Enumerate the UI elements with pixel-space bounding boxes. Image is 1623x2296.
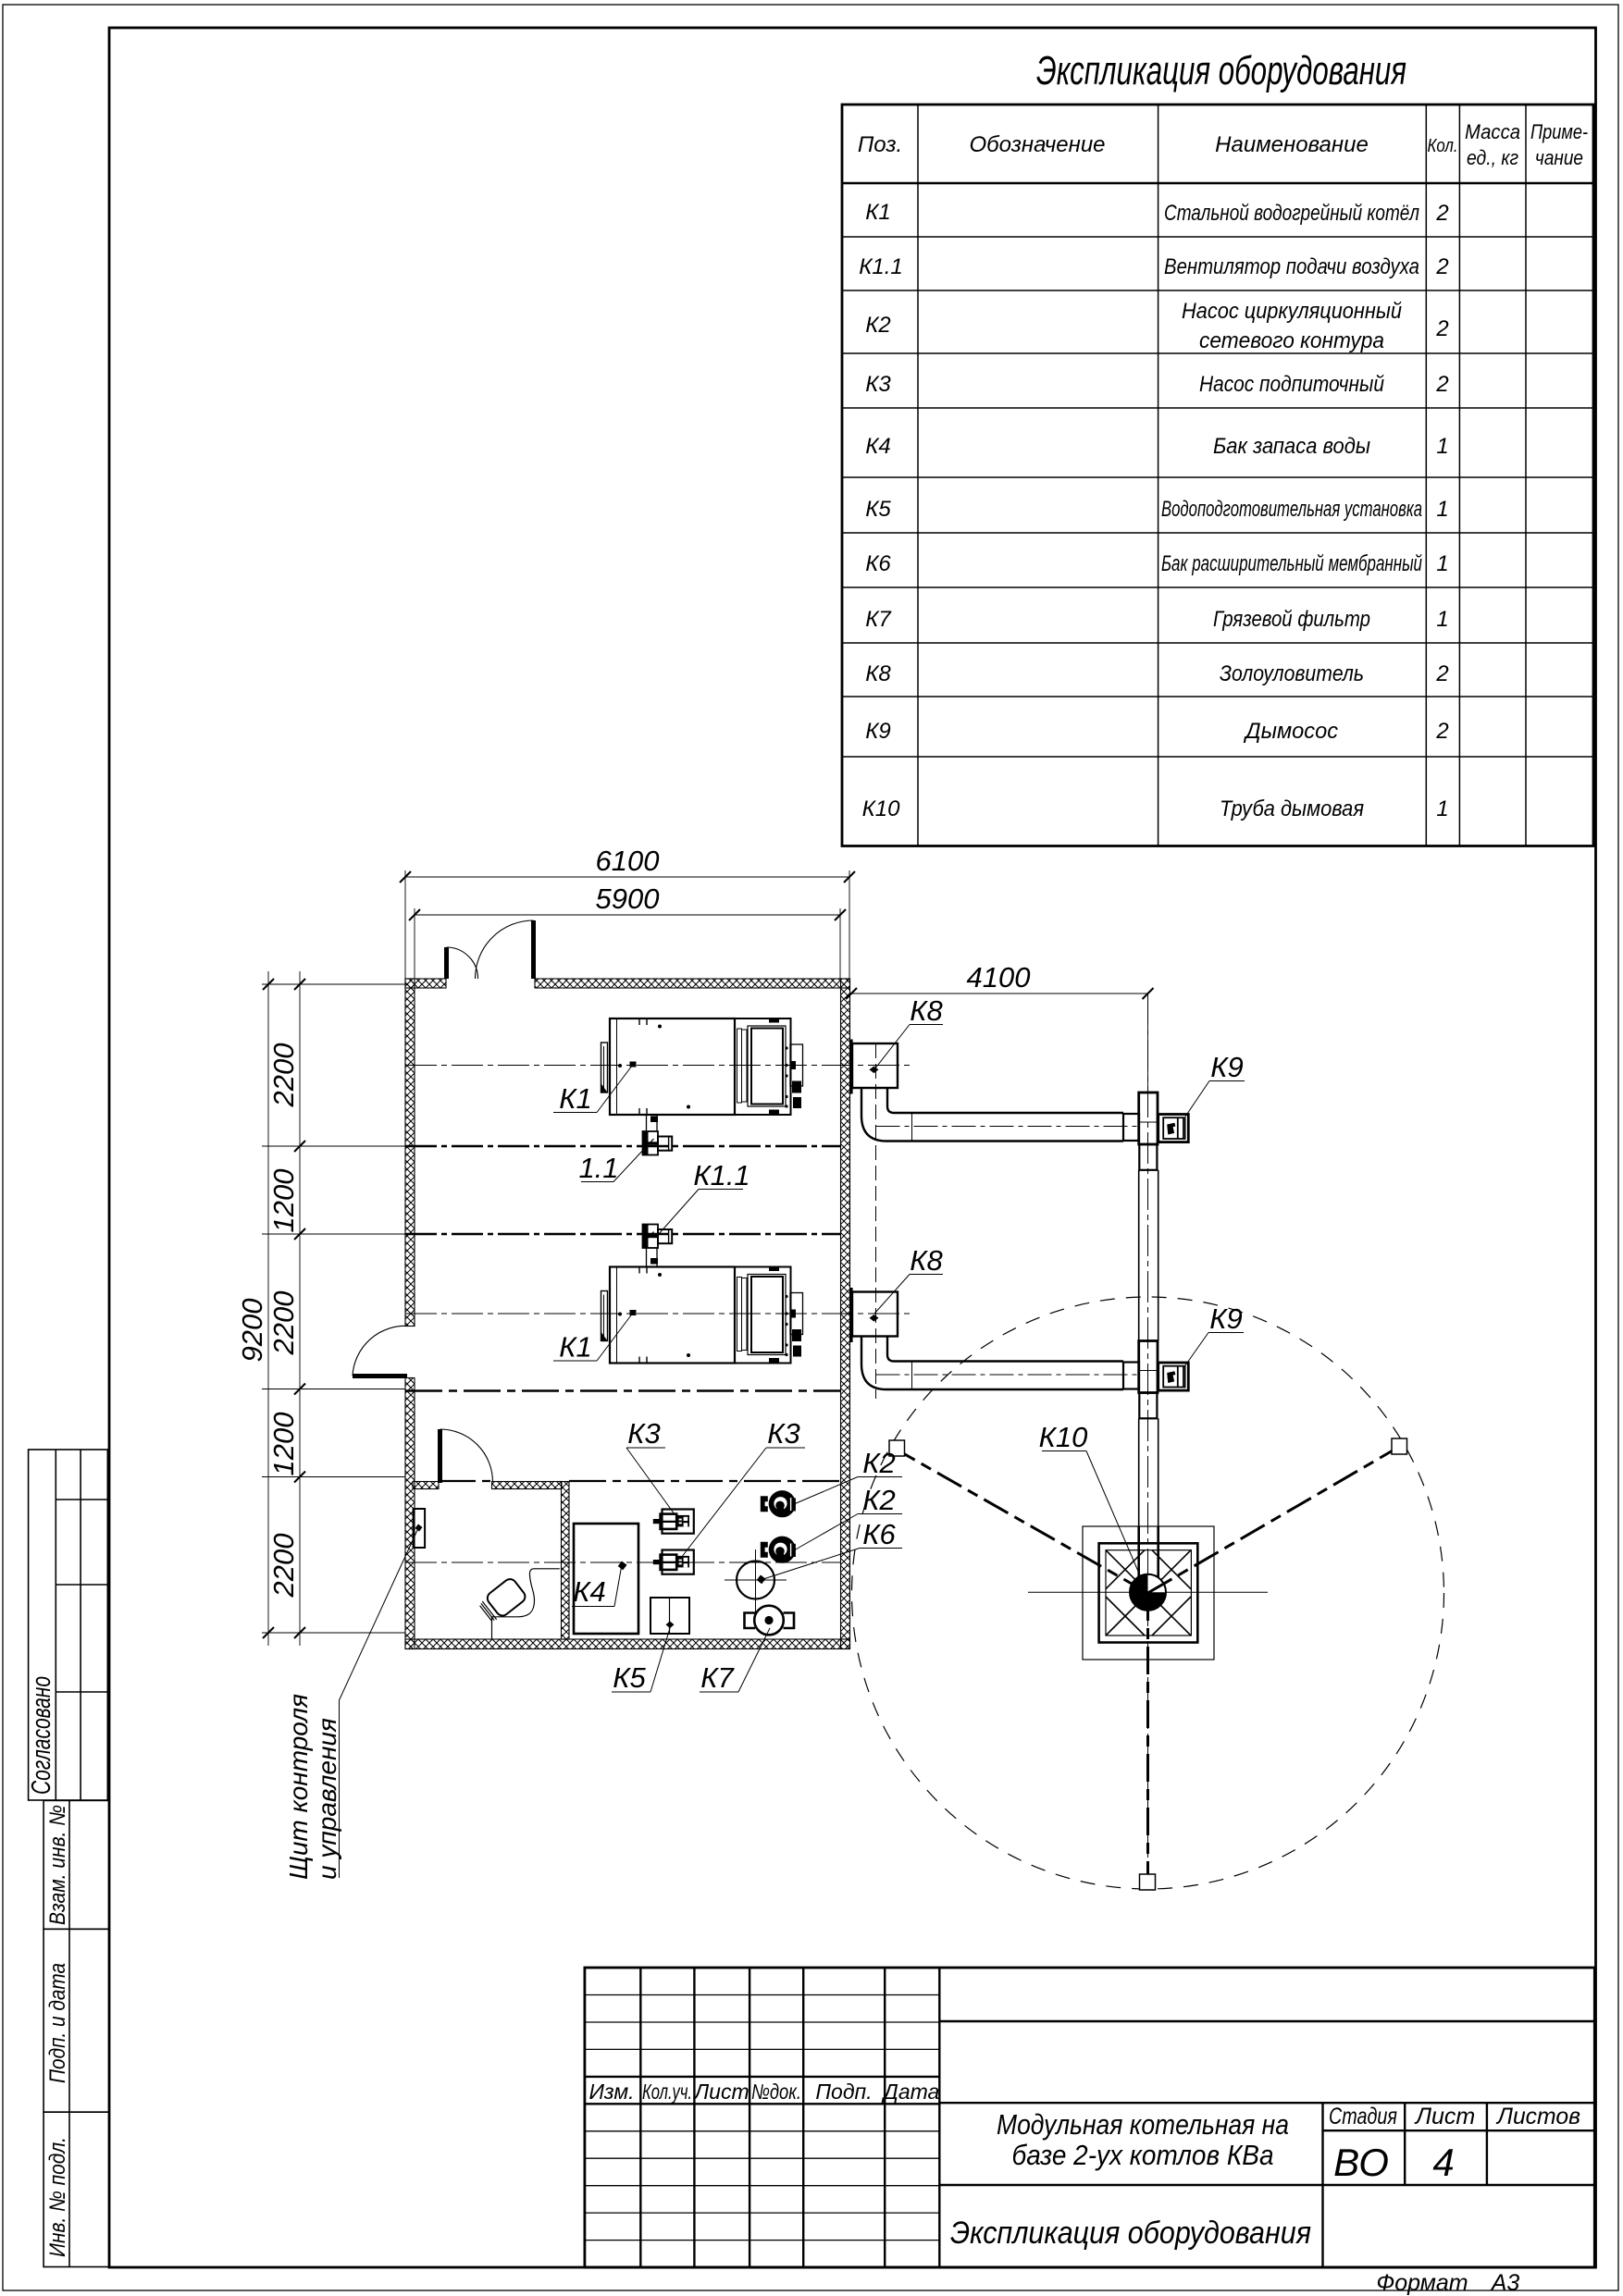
svg-text:ВО: ВО: [1333, 2141, 1389, 2184]
svg-text:К6: К6: [862, 1518, 896, 1550]
svg-text:2: 2: [1435, 372, 1448, 397]
svg-text:Дата: Дата: [881, 2080, 940, 2104]
svg-text:Кол.: Кол.: [1428, 136, 1458, 156]
svg-text:6100: 6100: [596, 845, 660, 877]
svg-text:1.1: 1.1: [578, 1152, 618, 1184]
svg-text:К1.1: К1.1: [693, 1159, 750, 1191]
svg-text:Листов: Листов: [1495, 2104, 1580, 2129]
svg-text:К3: К3: [865, 372, 891, 397]
svg-text:чание: чание: [1535, 146, 1583, 169]
svg-text:и управления: и управления: [313, 1718, 341, 1880]
svg-text:1200: 1200: [267, 1413, 300, 1476]
svg-text:К1: К1: [559, 1082, 592, 1115]
svg-text:К8: К8: [910, 994, 943, 1027]
svg-text:Приме-: Приме-: [1530, 120, 1588, 143]
svg-text:Насос подпиточный: Насос подпиточный: [1199, 372, 1384, 397]
svg-text:2: 2: [1435, 201, 1448, 226]
svg-text:Щит контроля: Щит контроля: [284, 1694, 313, 1880]
svg-text:1: 1: [1436, 607, 1448, 632]
svg-text:2200: 2200: [267, 1291, 300, 1356]
svg-text:К6: К6: [865, 551, 891, 576]
svg-text:К2: К2: [862, 1484, 896, 1516]
svg-text:Экспликация оборудования: Экспликация оборудования: [1036, 48, 1406, 93]
svg-text:К2: К2: [862, 1447, 896, 1479]
svg-text:К9: К9: [1209, 1302, 1243, 1335]
svg-text:К5: К5: [865, 497, 891, 522]
svg-text:Лист: Лист: [1414, 2104, 1475, 2129]
svg-text:1200: 1200: [267, 1169, 300, 1233]
svg-text:К1: К1: [559, 1331, 592, 1364]
svg-text:Стальной водогрейный котёл: Стальной водогрейный котёл: [1164, 201, 1419, 226]
svg-text:Согласовано: Согласовано: [27, 1676, 56, 1795]
svg-text:1: 1: [1436, 497, 1448, 522]
svg-text:Подп.: Подп.: [815, 2080, 872, 2104]
svg-text:К2: К2: [865, 313, 891, 338]
svg-text:Бак расширительный мембранный: Бак расширительный мембранный: [1161, 551, 1422, 576]
svg-text:К3: К3: [627, 1417, 661, 1450]
svg-text:К7: К7: [865, 607, 892, 632]
svg-text:К1.1: К1.1: [859, 254, 903, 279]
svg-text:4: 4: [1432, 2141, 1454, 2184]
svg-text:1: 1: [1436, 551, 1448, 576]
svg-text:2: 2: [1435, 719, 1448, 744]
svg-text:базе 2-ух котлов КВа: базе 2-ух котлов КВа: [1012, 2139, 1274, 2171]
svg-text:Подп. и дата: Подп. и дата: [45, 1963, 70, 2083]
svg-text:Труба дымовая: Труба дымовая: [1220, 796, 1364, 821]
svg-text:Обозначение: Обозначение: [969, 132, 1105, 157]
svg-text:2200: 2200: [267, 1043, 300, 1108]
svg-text:Наименование: Наименование: [1215, 132, 1369, 157]
svg-text:Инв. № подл.: Инв. № подл.: [45, 2137, 70, 2257]
svg-text:2200: 2200: [267, 1534, 300, 1599]
svg-text:К4: К4: [573, 1575, 606, 1608]
svg-text:4100: 4100: [967, 961, 1031, 994]
svg-text:ед., кг: ед., кг: [1467, 146, 1518, 169]
svg-text:сетевого контура: сетевого контура: [1199, 328, 1384, 353]
svg-text:А3: А3: [1490, 2270, 1520, 2296]
svg-text:Золоуловитель: Золоуловитель: [1220, 661, 1364, 686]
svg-text:Насос циркуляционный: Насос циркуляционный: [1182, 299, 1402, 324]
svg-text:Модульная котельная на: Модульная котельная на: [997, 2108, 1289, 2141]
svg-text:2: 2: [1435, 316, 1448, 341]
svg-text:Дымосос: Дымосос: [1243, 719, 1338, 744]
svg-text:Взам. инв. №: Взам. инв. №: [45, 1805, 70, 1925]
svg-text:К7: К7: [700, 1661, 735, 1694]
svg-text:Изм.: Изм.: [588, 2080, 634, 2104]
svg-text:Масса: Масса: [1465, 120, 1520, 143]
svg-text:К9: К9: [865, 719, 891, 744]
svg-text:Экспликация оборудования: Экспликация оборудования: [950, 2216, 1311, 2251]
svg-text:Кол.уч.: Кол.уч.: [642, 2080, 692, 2104]
svg-text:1: 1: [1436, 434, 1448, 459]
svg-text:№док.: №док.: [751, 2080, 801, 2104]
svg-text:2: 2: [1435, 661, 1448, 686]
svg-text:Лист: Лист: [692, 2080, 749, 2104]
svg-text:Поз.: Поз.: [858, 132, 902, 157]
svg-text:Грязевой фильтр: Грязевой фильтр: [1213, 607, 1370, 632]
svg-text:5900: 5900: [596, 883, 660, 915]
svg-text:К4: К4: [865, 434, 891, 459]
svg-text:К5: К5: [613, 1661, 646, 1694]
svg-text:9200: 9200: [236, 1299, 268, 1363]
svg-text:К10: К10: [862, 796, 900, 821]
svg-text:Формат: Формат: [1376, 2270, 1468, 2296]
svg-text:К10: К10: [1039, 1421, 1088, 1453]
svg-text:Вентилятор подачи воздуха: Вентилятор подачи воздуха: [1164, 254, 1419, 279]
svg-text:2: 2: [1435, 254, 1448, 279]
svg-text:К8: К8: [865, 661, 891, 686]
svg-text:Бак запаса воды: Бак запаса воды: [1213, 434, 1370, 459]
svg-text:К8: К8: [910, 1244, 943, 1277]
svg-text:К9: К9: [1210, 1051, 1244, 1083]
svg-text:К1: К1: [865, 200, 891, 225]
svg-text:Стадия: Стадия: [1329, 2104, 1397, 2129]
svg-text:К3: К3: [767, 1417, 800, 1450]
svg-text:1: 1: [1436, 796, 1448, 821]
svg-text:Водоподготовительная установка: Водоподготовительная установка: [1161, 497, 1422, 522]
